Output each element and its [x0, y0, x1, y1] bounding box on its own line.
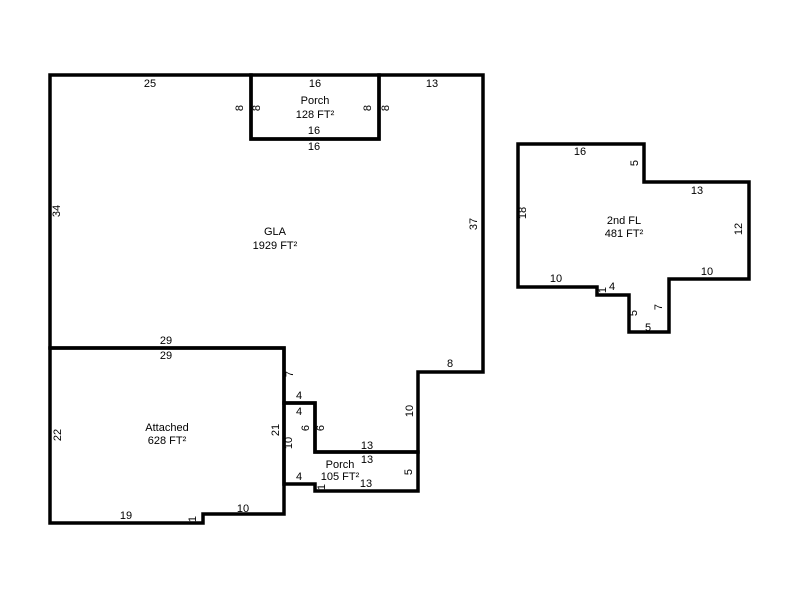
second-floor-area-label: 481 FT² [605, 228, 644, 240]
dimension-label: 29 [160, 350, 172, 362]
sketch-svg: 25 13 8 8 16 34 37 29 8 7 4 10 6 13 16 8… [0, 0, 800, 600]
dimension-label: 34 [51, 205, 63, 217]
dimension-label: 4 [296, 406, 302, 418]
dimension-label: 22 [52, 429, 64, 441]
dimension-label: 7 [284, 371, 296, 377]
rear-porch-area-label: 105 FT² [321, 471, 360, 483]
front-porch-name-label: Porch [301, 95, 330, 107]
dimension-label: 1 [316, 484, 328, 490]
dimension-label: 13 [361, 454, 373, 466]
front-porch-area-label: 128 FT² [296, 109, 335, 121]
dimension-label: 13 [426, 78, 438, 90]
garage-name-label: Attached [145, 422, 188, 434]
dimension-label: 4 [609, 281, 615, 293]
dimension-label: 16 [308, 141, 320, 153]
second-floor-name-label: 2nd FL [607, 215, 641, 227]
dimension-label: 4 [296, 390, 302, 402]
dimension-label: 16 [574, 146, 586, 158]
dimension-label: 16 [308, 125, 320, 137]
dimension-label: 7 [653, 304, 665, 310]
dimension-label: 8 [251, 105, 263, 111]
dimension-label: 10 [550, 273, 562, 285]
dimension-label: 10 [283, 437, 295, 449]
dimension-label: 8 [380, 105, 392, 111]
gla-name-label: GLA [264, 226, 287, 238]
dimension-label: 12 [733, 223, 745, 235]
dimension-label: 13 [360, 478, 372, 490]
dimension-label: 10 [404, 405, 416, 417]
gla-outline [50, 75, 483, 452]
dimension-label: 5 [629, 160, 641, 166]
dimension-label: 5 [645, 322, 651, 334]
dimension-label: 21 [270, 424, 282, 436]
dimension-label: 16 [309, 78, 321, 90]
dimension-label: 19 [120, 510, 132, 522]
garage-area-label: 628 FT² [148, 435, 187, 447]
dimension-label: 8 [234, 105, 246, 111]
dimension-label: 5 [628, 310, 640, 316]
dimension-label: 5 [403, 469, 415, 475]
floor-plan-sketch: 25 13 8 8 16 34 37 29 8 7 4 10 6 13 16 8… [0, 0, 800, 600]
dimension-label: 25 [144, 78, 156, 90]
gla-area-label: 1929 FT² [253, 240, 298, 252]
dimension-label: 29 [160, 335, 172, 347]
dimension-label: 13 [691, 185, 703, 197]
dimension-label: 8 [362, 105, 374, 111]
dimension-label: 10 [701, 266, 713, 278]
dimension-label: 1 [187, 516, 199, 522]
dimension-label: 8 [447, 358, 453, 370]
dimension-label: 1 [597, 287, 609, 293]
dimension-label: 10 [237, 503, 249, 515]
dimension-label: 4 [296, 471, 302, 483]
dimension-label: 18 [517, 207, 529, 219]
dimension-label: 6 [300, 425, 312, 431]
dimension-label: 13 [361, 440, 373, 452]
dimension-label: 6 [315, 425, 327, 431]
dimension-label: 37 [468, 218, 480, 230]
rear-porch-name-label: Porch [326, 459, 355, 471]
